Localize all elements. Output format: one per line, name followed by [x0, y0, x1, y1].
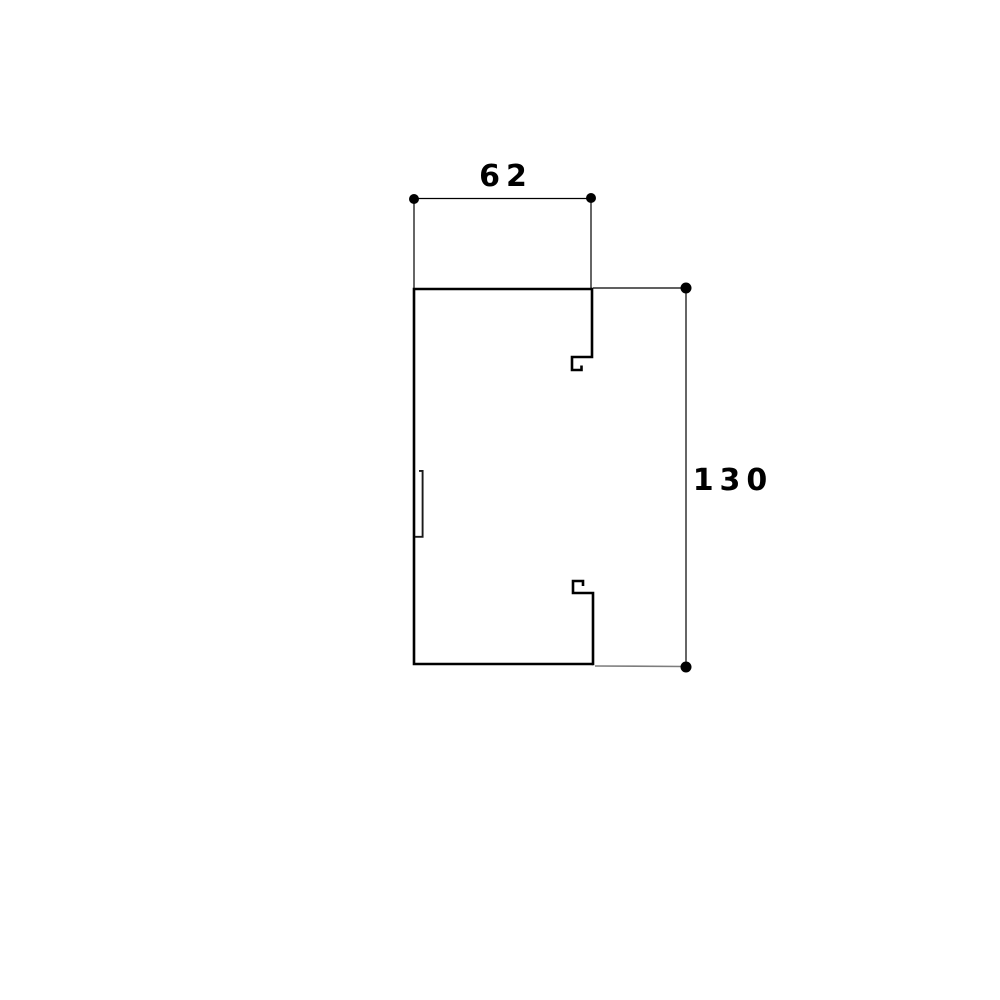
dimension-dot-top-right [586, 193, 596, 203]
profile-outline [414, 288, 593, 666]
height-extension-line-bottom [595, 666, 684, 667]
profile-main-edges [414, 289, 593, 664]
drawing-canvas: 62 130 [0, 0, 1000, 1000]
width-dimension-label: 62 [479, 159, 533, 194]
height-dimension-label: 130 [693, 463, 774, 498]
dimension-dot-right-top [681, 283, 692, 294]
height-dimension [593, 288, 686, 667]
profile-bottom-right-hook [573, 581, 593, 665]
profile-drawing-svg: 62 130 [0, 0, 1000, 1000]
width-dimension [414, 198, 591, 288]
profile-top-right-hook [572, 288, 592, 370]
profile-left-fold-slot [415, 471, 423, 537]
dimension-dot-right-bottom [681, 662, 692, 673]
dimension-dot-top-left [409, 194, 419, 204]
